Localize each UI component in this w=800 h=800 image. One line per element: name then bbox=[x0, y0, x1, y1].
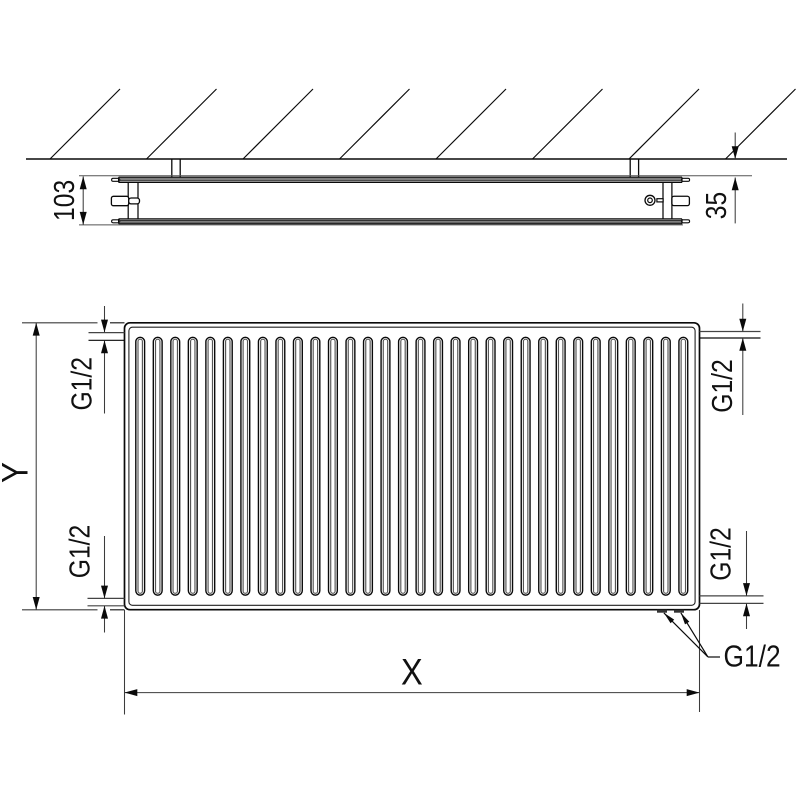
svg-text:103: 103 bbox=[48, 180, 80, 221]
svg-text:G1/2: G1/2 bbox=[64, 525, 96, 578]
svg-text:G1/2: G1/2 bbox=[724, 640, 781, 674]
svg-text:G1/2: G1/2 bbox=[66, 357, 98, 410]
svg-text:X: X bbox=[401, 652, 423, 693]
svg-text:35: 35 bbox=[700, 192, 732, 219]
svg-text:G1/2: G1/2 bbox=[705, 527, 737, 580]
svg-text:G1/2: G1/2 bbox=[706, 359, 738, 412]
svg-text:Y: Y bbox=[0, 462, 36, 483]
